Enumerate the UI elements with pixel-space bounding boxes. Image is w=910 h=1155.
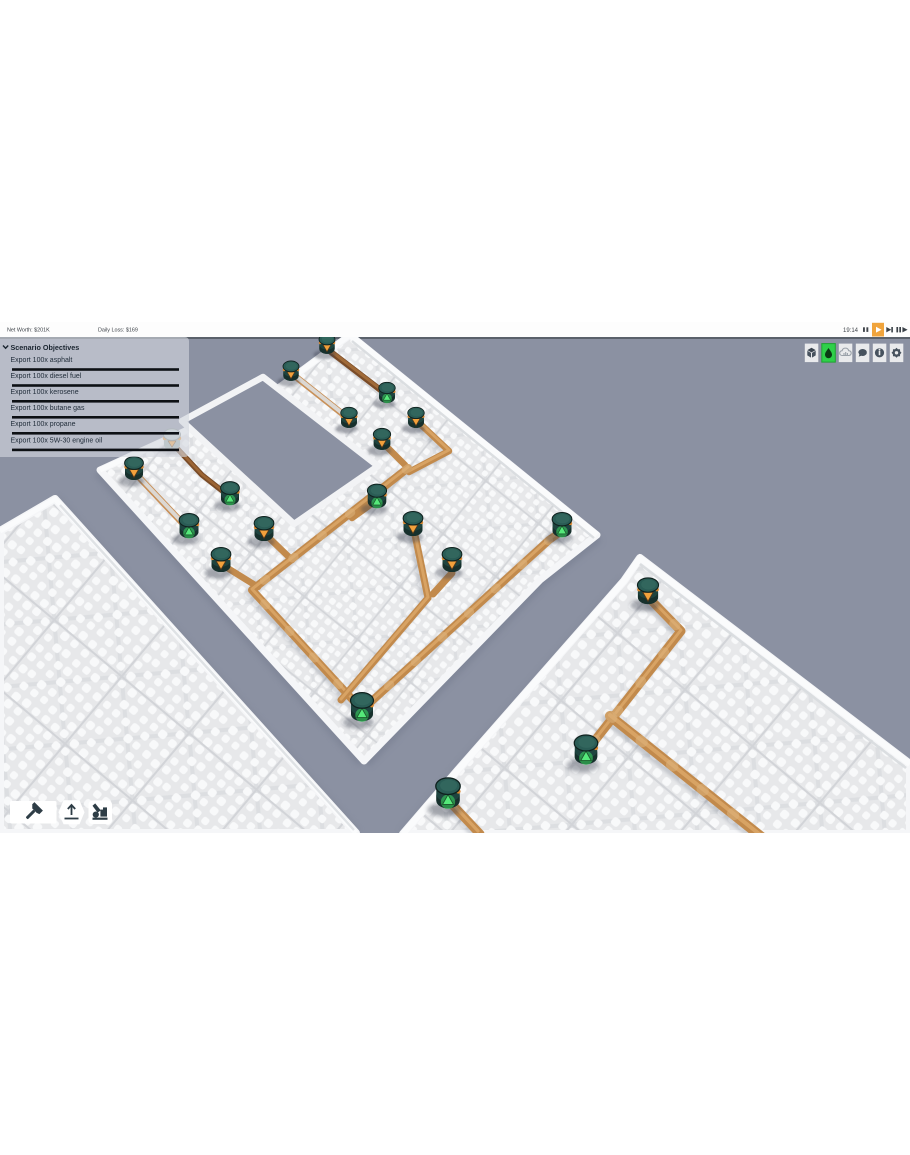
svg-text:Export 100x asphalt: Export 100x asphalt: [11, 357, 73, 364]
svg-text:Export 100x 5W-30 engine oil: Export 100x 5W-30 engine oil: [11, 437, 103, 444]
svg-text:Daily Loss: $169: Daily Loss: $169: [98, 328, 138, 334]
svg-text:Scenario Objectives: Scenario Objectives: [11, 343, 80, 352]
svg-text:Export 100x butane gas: Export 100x butane gas: [11, 405, 85, 412]
svg-text:19:14: 19:14: [843, 328, 859, 334]
svg-text:Net Worth: $201K: Net Worth: $201K: [7, 328, 50, 334]
svg-text:Export 100x diesel fuel: Export 100x diesel fuel: [11, 373, 82, 380]
svg-text:Export 100x kerosene: Export 100x kerosene: [11, 389, 79, 396]
svg-text:Export 100x propane: Export 100x propane: [11, 421, 76, 428]
